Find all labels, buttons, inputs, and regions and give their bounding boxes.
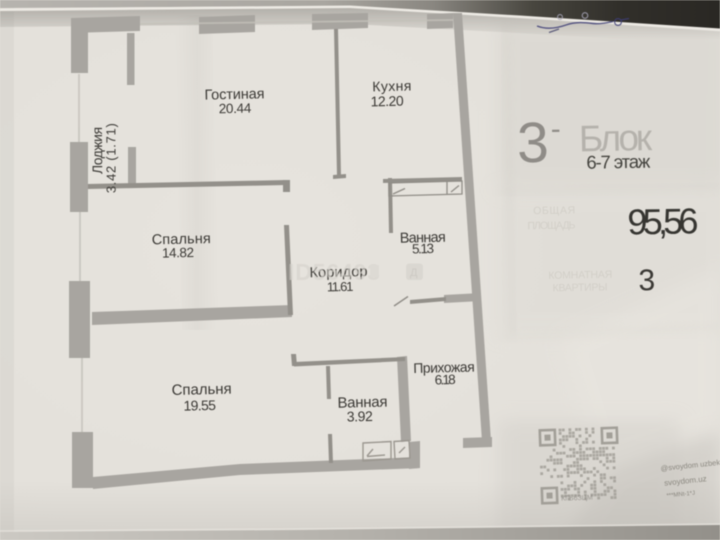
svg-text:КГЬ6ЗЦМ: КГЬ6ЗЦМ (561, 495, 593, 503)
svg-text:20.44: 20.44 (219, 101, 252, 117)
svg-text:6-7 этаж: 6-7 этаж (586, 151, 651, 173)
svg-text:-: - (550, 113, 561, 146)
svg-text:5.13: 5.13 (412, 241, 434, 256)
svg-text:КВАРТИРЫ: КВАРТИРЫ (552, 281, 607, 294)
svg-text:Кухня: Кухня (372, 77, 411, 94)
svg-text:12.20: 12.20 (370, 93, 404, 110)
svg-text:3: 3 (638, 264, 655, 297)
svg-text:Спальня: Спальня (171, 381, 231, 399)
svg-text:19.55: 19.55 (183, 397, 216, 414)
svg-text:ID56493: ID56493 (288, 259, 380, 285)
svg-text:ОБЩАЯ: ОБЩАЯ (533, 204, 575, 217)
svg-text:6.18: 6.18 (435, 372, 456, 387)
svg-text:95,56: 95,56 (627, 200, 699, 242)
svg-text:ПЛОЩАДЬ: ПЛОЩАДЬ (527, 219, 575, 232)
svg-text:3.42 (1.71): 3.42 (1.71) (103, 123, 118, 193)
svg-text:КОМНАТНАЯ: КОМНАТНАЯ (548, 269, 612, 282)
svg-text:3.92: 3.92 (347, 408, 374, 425)
svg-text:3: 3 (516, 111, 549, 176)
svg-text:14.82: 14.82 (162, 245, 194, 261)
svg-text:Д: Д (410, 267, 418, 279)
